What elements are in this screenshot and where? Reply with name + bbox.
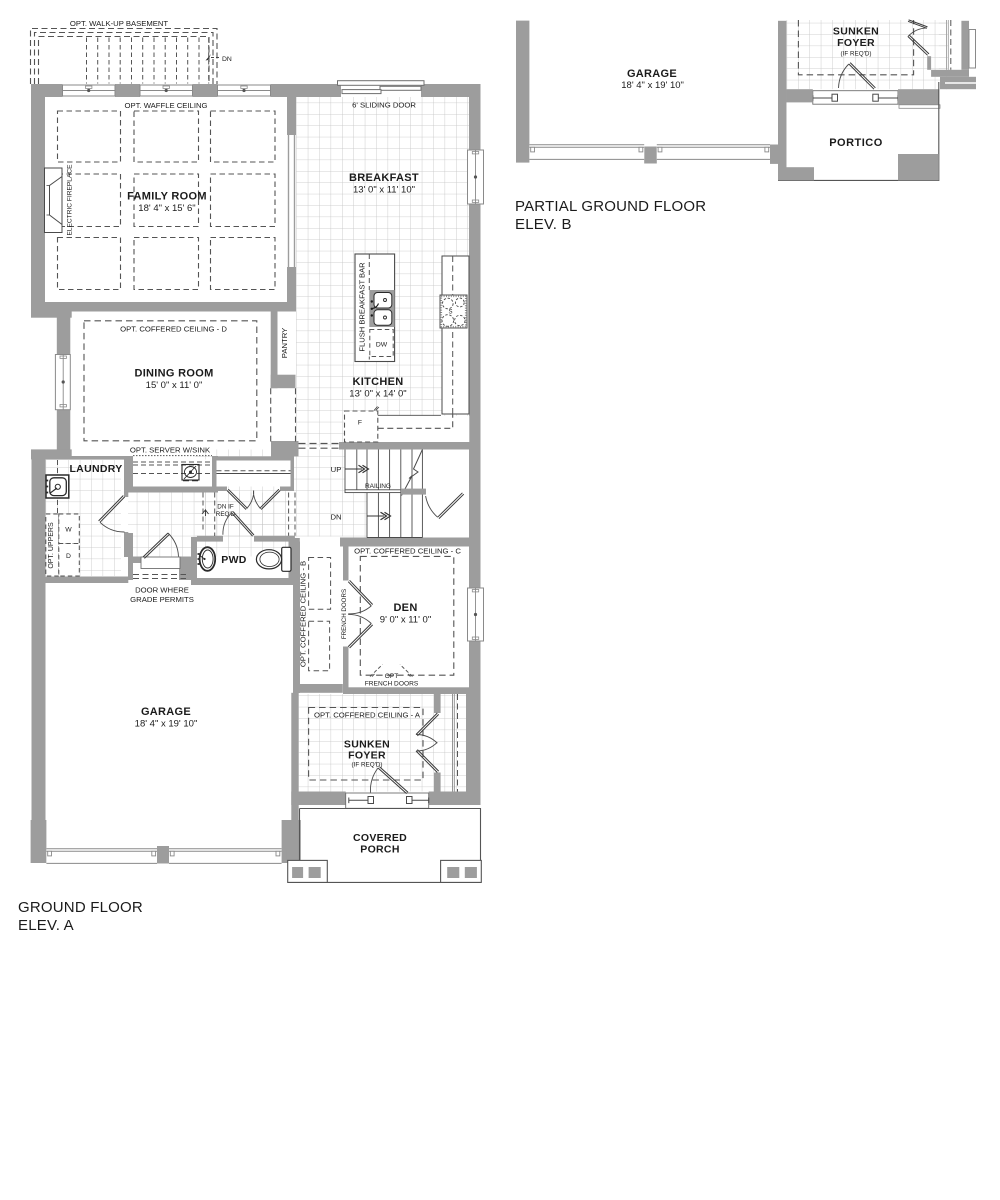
svg-text:UP: UP xyxy=(331,465,342,474)
svg-text:DN IF: DN IF xyxy=(217,504,234,511)
svg-text:OPT. COFFERED CEILING - A: OPT. COFFERED CEILING - A xyxy=(314,711,421,720)
svg-text:RAILING: RAILING xyxy=(365,483,391,490)
svg-text:PARTIAL GROUND FLOOR: PARTIAL GROUND FLOOR xyxy=(515,198,706,215)
svg-text:PORCH: PORCH xyxy=(360,844,399,856)
svg-text:ELEV. B: ELEV. B xyxy=(515,216,572,233)
svg-text:BREAKFAST: BREAKFAST xyxy=(349,172,419,184)
svg-text:FOYER: FOYER xyxy=(348,750,386,762)
svg-text:OPT. WALK-UP BASEMENT: OPT. WALK-UP BASEMENT xyxy=(70,19,169,28)
svg-text:DINING ROOM: DINING ROOM xyxy=(134,368,213,380)
svg-text:ELEV. A: ELEV. A xyxy=(18,917,74,934)
svg-text:PANTRY: PANTRY xyxy=(280,328,289,358)
svg-text:W: W xyxy=(65,527,72,534)
svg-text:(IF REQ'D): (IF REQ'D) xyxy=(352,762,383,769)
svg-text:13' 0" x 11' 10": 13' 0" x 11' 10" xyxy=(353,185,415,196)
svg-text:13' 0" x 14' 0": 13' 0" x 14' 0" xyxy=(349,389,406,400)
svg-text:GRADE PERMITS: GRADE PERMITS xyxy=(130,595,194,604)
svg-text:18' 4" x 19' 10": 18' 4" x 19' 10" xyxy=(135,719,198,730)
svg-text:18' 4" x 19' 10": 18' 4" x 19' 10" xyxy=(621,80,684,91)
svg-text:OPT. COFFERED CEILING - D: OPT. COFFERED CEILING - D xyxy=(120,325,227,334)
svg-text:GARAGE: GARAGE xyxy=(627,68,677,80)
svg-text:FRENCH DOORS: FRENCH DOORS xyxy=(365,681,419,688)
svg-text:6' SLIDING DOOR: 6' SLIDING DOOR xyxy=(352,101,416,110)
svg-text:FLUSH BREAKFAST BAR: FLUSH BREAKFAST BAR xyxy=(358,262,367,352)
svg-text:(IF REQ'D): (IF REQ'D) xyxy=(841,51,872,58)
svg-text:DOOR WHERE: DOOR WHERE xyxy=(135,586,189,595)
svg-text:DEN: DEN xyxy=(393,602,417,614)
svg-text:DN: DN xyxy=(222,56,232,63)
svg-text:PORTICO: PORTICO xyxy=(829,137,883,149)
svg-text:OPT. COFFERED CEILING - C: OPT. COFFERED CEILING - C xyxy=(354,547,461,556)
svg-text:OPT. UPPERS: OPT. UPPERS xyxy=(48,522,55,569)
svg-text:FRENCH DOORS: FRENCH DOORS xyxy=(341,589,348,639)
svg-text:DW: DW xyxy=(376,342,388,349)
svg-text:18' 4" x 15' 6": 18' 4" x 15' 6" xyxy=(138,203,195,214)
svg-text:DN: DN xyxy=(330,513,341,522)
svg-text:OPT. WAFFLE CEILING: OPT. WAFFLE CEILING xyxy=(124,101,207,110)
svg-text:GROUND FLOOR: GROUND FLOOR xyxy=(18,899,143,916)
svg-text:COVERED: COVERED xyxy=(353,832,407,844)
svg-text:15' 0" x 11' 0": 15' 0" x 11' 0" xyxy=(146,380,203,391)
svg-text:SUNKEN: SUNKEN xyxy=(833,26,879,38)
svg-text:D: D xyxy=(66,553,71,560)
svg-text:OPT. COFFERED CEILING - B: OPT. COFFERED CEILING - B xyxy=(299,561,308,667)
svg-text:PWD: PWD xyxy=(221,554,247,566)
svg-text:S: S xyxy=(448,310,452,316)
svg-text:F: F xyxy=(358,420,362,427)
svg-text:9' 0" x 11' 0": 9' 0" x 11' 0" xyxy=(380,615,431,626)
svg-text:OPT: OPT xyxy=(385,673,399,680)
svg-text:FOYER: FOYER xyxy=(837,37,875,49)
svg-text:GARAGE: GARAGE xyxy=(141,706,191,718)
svg-text:FAMILY ROOM: FAMILY ROOM xyxy=(127,191,207,203)
svg-text:OPT. SERVER W/SINK: OPT. SERVER W/SINK xyxy=(130,446,211,455)
svg-text:ELECTRIC FIREPLACE: ELECTRIC FIREPLACE xyxy=(67,164,74,236)
svg-text:KITCHEN: KITCHEN xyxy=(353,376,404,388)
svg-text:LAUNDRY: LAUNDRY xyxy=(69,463,122,475)
